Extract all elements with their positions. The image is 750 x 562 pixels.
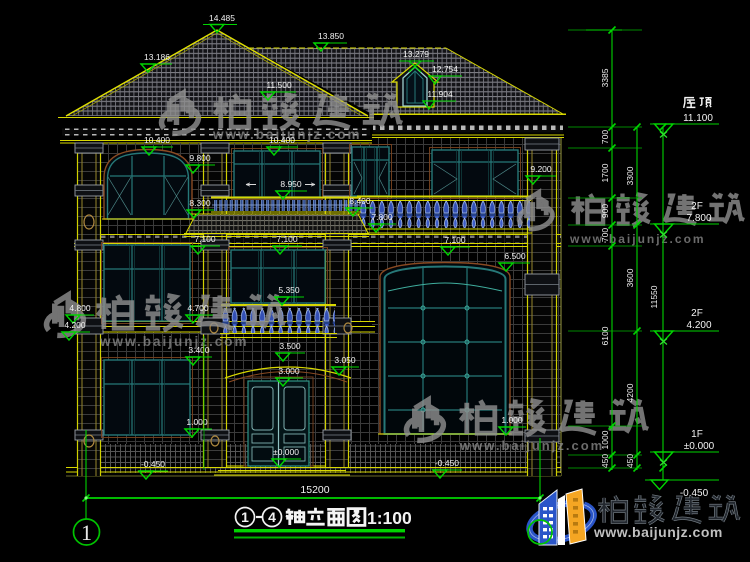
svg-text:-0.450: -0.450 bbox=[435, 458, 459, 468]
svg-text:13.279: 13.279 bbox=[403, 49, 429, 59]
svg-text:3.050: 3.050 bbox=[334, 355, 356, 365]
svg-text:4.200: 4.200 bbox=[686, 320, 711, 331]
svg-text:9.800: 9.800 bbox=[189, 153, 211, 163]
svg-text:5.350: 5.350 bbox=[278, 285, 300, 295]
svg-text:1:100: 1:100 bbox=[367, 508, 412, 528]
svg-text:4: 4 bbox=[268, 509, 276, 525]
svg-text:7.100: 7.100 bbox=[276, 234, 298, 244]
svg-text:3300: 3300 bbox=[625, 166, 635, 185]
svg-text:7.800: 7.800 bbox=[371, 212, 393, 222]
svg-text:-0.450: -0.450 bbox=[141, 459, 165, 469]
svg-text:8.950: 8.950 bbox=[280, 179, 302, 189]
svg-text:700: 700 bbox=[600, 228, 610, 242]
svg-text:1.000: 1.000 bbox=[186, 417, 208, 427]
svg-text:9.200: 9.200 bbox=[530, 164, 552, 174]
svg-text:±0.000: ±0.000 bbox=[273, 447, 299, 457]
svg-text:11.100: 11.100 bbox=[683, 113, 713, 124]
svg-text:3385: 3385 bbox=[600, 68, 610, 87]
svg-text:10.400: 10.400 bbox=[269, 135, 295, 145]
svg-text:3.500: 3.500 bbox=[279, 341, 301, 351]
svg-text:11550: 11550 bbox=[649, 285, 659, 308]
svg-text:8.300: 8.300 bbox=[189, 198, 211, 208]
svg-text:4.700: 4.700 bbox=[187, 303, 209, 313]
svg-text:2F: 2F bbox=[691, 201, 703, 212]
svg-text:10.400: 10.400 bbox=[144, 135, 170, 145]
svg-text:1000: 1000 bbox=[600, 430, 610, 449]
svg-text:7.100: 7.100 bbox=[194, 234, 216, 244]
svg-text:3.400: 3.400 bbox=[188, 345, 210, 355]
svg-text:1.000: 1.000 bbox=[501, 415, 523, 425]
svg-text:3.000: 3.000 bbox=[278, 366, 300, 376]
svg-text:-0.450: -0.450 bbox=[680, 488, 709, 499]
svg-text:3600: 3600 bbox=[625, 268, 635, 287]
svg-text:15200: 15200 bbox=[300, 484, 329, 496]
svg-text:7.800: 7.800 bbox=[686, 213, 711, 224]
svg-text:1F: 1F bbox=[691, 429, 703, 440]
svg-text:6.500: 6.500 bbox=[504, 251, 526, 261]
svg-text:14.485: 14.485 bbox=[209, 13, 235, 23]
svg-text:www.baijunjz.com: www.baijunjz.com bbox=[593, 524, 723, 540]
svg-text:4200: 4200 bbox=[625, 383, 635, 402]
svg-text:12.754: 12.754 bbox=[432, 64, 458, 74]
svg-text:450: 450 bbox=[625, 454, 635, 468]
svg-text:www.baijunjz.com: www.baijunjz.com bbox=[99, 334, 249, 349]
svg-text:11.500: 11.500 bbox=[266, 80, 292, 90]
svg-text:700: 700 bbox=[600, 130, 610, 144]
svg-text:1: 1 bbox=[241, 509, 249, 525]
svg-text:8.400: 8.400 bbox=[349, 196, 371, 206]
svg-text:6100: 6100 bbox=[600, 326, 610, 345]
svg-text:www.baijunjz.com: www.baijunjz.com bbox=[459, 438, 604, 453]
svg-text:2F: 2F bbox=[691, 308, 703, 319]
svg-text:11.904: 11.904 bbox=[427, 89, 453, 99]
svg-text:900: 900 bbox=[600, 204, 610, 218]
svg-text:450: 450 bbox=[600, 454, 610, 468]
svg-text:7.100: 7.100 bbox=[444, 235, 466, 245]
svg-text:4.800: 4.800 bbox=[69, 303, 91, 313]
svg-text:±0.000: ±0.000 bbox=[684, 441, 715, 452]
svg-text:13.186: 13.186 bbox=[144, 52, 170, 62]
svg-text:1700: 1700 bbox=[600, 163, 610, 182]
svg-text:1: 1 bbox=[81, 520, 92, 545]
svg-text:4.200: 4.200 bbox=[64, 320, 86, 330]
svg-text:13.850: 13.850 bbox=[318, 31, 344, 41]
